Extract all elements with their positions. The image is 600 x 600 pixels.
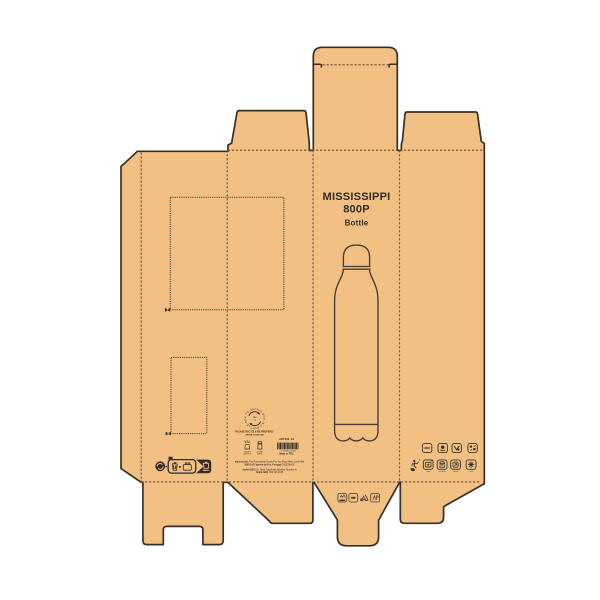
svg-text:Deink-ABQ: 001 023 2045: Deink-ABQ: 001 023 2045 [256, 471, 284, 474]
svg-text:SAFE: SAFE [257, 452, 263, 455]
svg-text:PLEASE RECYCLE ME PROPERLY: PLEASE RECYCLE ME PROPERLY [235, 431, 274, 434]
svg-text:BOTTLE: BOTTLE [244, 453, 252, 455]
svg-text:cool: cool [469, 471, 473, 473]
svg-text:no wash: no wash [439, 471, 446, 473]
svg-text:Bottle: Bottle [345, 219, 369, 228]
svg-text:1000-100 Figueira da Foz, Port: 1000-100 Figueira da Foz, Portugal 01020… [244, 463, 295, 466]
svg-text:ART060 .01: ART060 .01 [279, 437, 294, 441]
svg-text:AFTER YOUR USE: AFTER YOUR USE [245, 433, 264, 436]
svg-text:MISSISSIPPI: MISSISSIPPI [323, 191, 391, 203]
svg-text:800P: 800P [343, 203, 370, 215]
svg-text:8 719941 012345: 8 719941 012345 [281, 450, 296, 452]
svg-text:Made in PRC: Made in PRC [279, 454, 294, 456]
svg-text:wipe: wipe [426, 471, 430, 473]
svg-text:return: return [453, 470, 458, 473]
svg-text:Amfori BSCI ID: Need Trademark: Amfori BSCI ID: Need Trademark Member Nu… [242, 468, 297, 471]
svg-text:Imported by: The Promotional G: Imported by: The Promotional Goods For Y… [235, 461, 305, 464]
